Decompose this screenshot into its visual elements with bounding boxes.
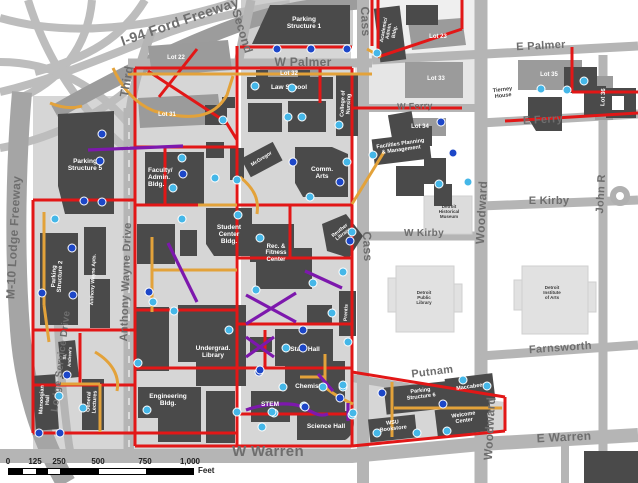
map-marker-cyan[interactable] [349, 409, 358, 418]
map-marker-cyan[interactable] [373, 429, 382, 438]
map-marker-cyan[interactable] [580, 77, 589, 86]
map-marker-blue[interactable] [63, 371, 72, 380]
map-marker-cyan[interactable] [55, 392, 64, 401]
map-marker-cyan[interactable] [79, 404, 88, 413]
markers-layer [0, 0, 638, 483]
map-marker-blue[interactable] [35, 429, 44, 438]
map-marker-blue[interactable] [96, 157, 105, 166]
map-marker-cyan[interactable] [178, 154, 187, 163]
map-marker-blue[interactable] [437, 118, 446, 127]
map-marker-cyan[interactable] [233, 408, 242, 417]
map-marker-blue[interactable] [439, 400, 448, 409]
map-marker-cyan[interactable] [288, 84, 297, 93]
map-marker-cyan[interactable] [225, 326, 234, 335]
map-marker-cyan[interactable] [339, 381, 348, 390]
map-marker-blue[interactable] [299, 326, 308, 335]
map-marker-blue[interactable] [307, 45, 316, 54]
map-marker-cyan[interactable] [298, 113, 307, 122]
map-marker-cyan[interactable] [233, 176, 242, 185]
map-marker-blue[interactable] [273, 45, 282, 54]
map-marker-blue[interactable] [336, 178, 345, 187]
map-marker-cyan[interactable] [170, 307, 179, 316]
map-marker-cyan[interactable] [279, 383, 288, 392]
map-marker-cyan[interactable] [256, 234, 265, 243]
map-marker-cyan[interactable] [234, 211, 243, 220]
scale-tick-250: 250 [52, 457, 65, 466]
map-marker-cyan[interactable] [537, 85, 546, 94]
scale-tick-0: 0 [6, 457, 10, 466]
map-marker-blue[interactable] [145, 288, 154, 297]
map-marker-cyan[interactable] [211, 174, 220, 183]
map-marker-blue[interactable] [299, 344, 308, 353]
map-marker-cyan[interactable] [483, 382, 492, 391]
scale-unit-label: Feet [198, 466, 214, 475]
map-marker-blue[interactable] [301, 403, 310, 412]
map-marker-blue[interactable] [179, 170, 188, 179]
map-marker-blue[interactable] [98, 198, 107, 207]
map-marker-blue[interactable] [38, 289, 47, 298]
scale-tick-125: 125 [28, 457, 41, 466]
map-marker-blue[interactable] [378, 389, 387, 398]
scale-tick-1000: 1,000 [180, 457, 200, 466]
map-marker-cyan[interactable] [306, 193, 315, 202]
map-marker-cyan[interactable] [464, 178, 473, 187]
map-marker-cyan[interactable] [459, 376, 468, 385]
map-marker-cyan[interactable] [258, 423, 267, 432]
map-marker-blue[interactable] [69, 291, 78, 300]
map-marker-cyan[interactable] [219, 116, 228, 125]
scale-bar: 0 125 250 500 750 1,000 Feet [6, 457, 236, 481]
scale-bar-segments [8, 468, 194, 475]
map-marker-cyan[interactable] [373, 49, 382, 58]
map-marker-cyan[interactable] [178, 215, 187, 224]
campus-map: I-94 Ford Freeway Third Second Cass Cass… [0, 0, 638, 483]
scale-tick-500: 500 [91, 457, 104, 466]
map-marker-blue[interactable] [68, 244, 77, 253]
map-marker-blue[interactable] [343, 45, 352, 54]
map-marker-blue[interactable] [336, 394, 345, 403]
map-marker-cyan[interactable] [309, 279, 318, 288]
map-marker-cyan[interactable] [443, 427, 452, 436]
map-marker-blue[interactable] [56, 429, 65, 438]
map-marker-cyan[interactable] [319, 383, 328, 392]
map-marker-cyan[interactable] [335, 121, 344, 130]
map-marker-cyan[interactable] [563, 86, 572, 95]
map-marker-blue[interactable] [449, 149, 458, 158]
map-marker-cyan[interactable] [343, 158, 352, 167]
map-marker-blue[interactable] [256, 366, 265, 375]
scale-tick-750: 750 [138, 457, 151, 466]
map-marker-cyan[interactable] [369, 151, 378, 160]
map-marker-cyan[interactable] [348, 228, 357, 237]
map-marker-blue[interactable] [98, 130, 107, 139]
map-marker-cyan[interactable] [51, 215, 60, 224]
map-marker-cyan[interactable] [251, 82, 260, 91]
map-marker-cyan[interactable] [344, 338, 353, 347]
map-marker-cyan[interactable] [149, 298, 158, 307]
map-marker-blue[interactable] [346, 237, 355, 246]
map-marker-cyan[interactable] [284, 113, 293, 122]
map-marker-cyan[interactable] [143, 406, 152, 415]
map-marker-cyan[interactable] [339, 268, 348, 277]
map-marker-blue[interactable] [289, 158, 298, 167]
map-marker-cyan[interactable] [268, 408, 277, 417]
map-marker-cyan[interactable] [328, 309, 337, 318]
map-marker-cyan[interactable] [169, 184, 178, 193]
map-marker-cyan[interactable] [134, 359, 143, 368]
map-marker-cyan[interactable] [435, 180, 444, 189]
map-marker-blue[interactable] [80, 197, 89, 206]
map-marker-cyan[interactable] [282, 344, 291, 353]
map-marker-cyan[interactable] [413, 429, 422, 438]
map-marker-cyan[interactable] [252, 286, 261, 295]
